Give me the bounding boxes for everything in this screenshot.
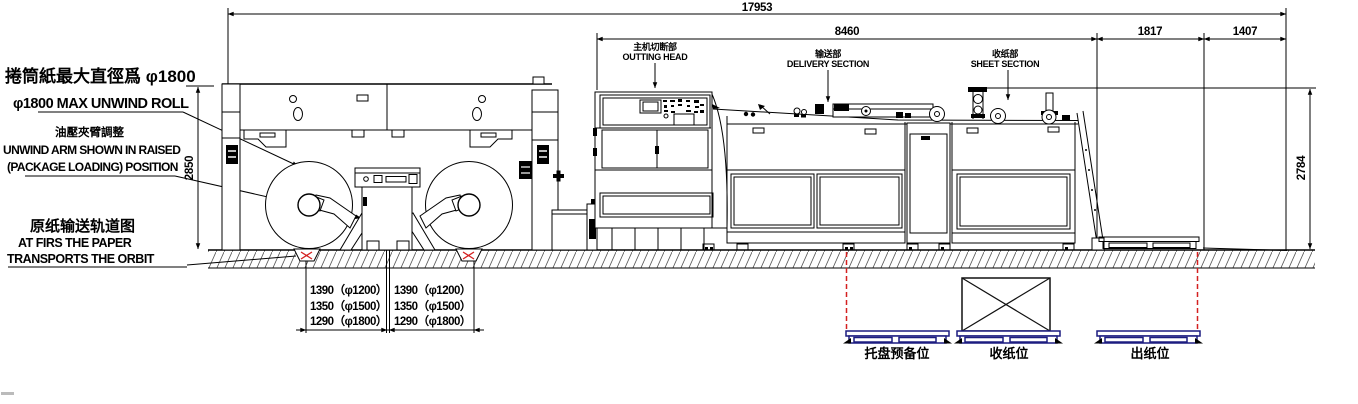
note-track-zh: 原纸输送轨道图 (30, 217, 135, 235)
note-arm-en1: UNWIND ARM SHOWN IN RAISED (3, 143, 181, 157)
frame-hole (290, 96, 297, 103)
sheet-cabinet (952, 122, 1075, 243)
note-paper-track: 原纸输送轨道图 AT FIRS THE PAPER TRANSPORTS THE… (7, 217, 296, 267)
label-sheet-en: SHEET SECTION (971, 59, 1040, 69)
stand-column-left (222, 84, 240, 250)
scan-artifact (1, 392, 14, 395)
cutter-base (612, 228, 704, 250)
frame-hole (479, 96, 486, 103)
label-delivery-zh: 输送部 (815, 48, 841, 59)
table-right: 1390（φ1200） 1350（φ1500） 1290（φ1800） (394, 283, 471, 328)
middle-cabinet (907, 123, 950, 243)
dim-1407: 1407 (1233, 26, 1257, 38)
table-left-row3: 1290（φ1800） (310, 314, 387, 328)
label-cutting-head: 主机切断部 OUTTING HEAD (623, 41, 689, 88)
outfeed-support (1099, 237, 1199, 249)
note-roll-zh: 捲筒紙最大直徑爲 φ1800 (5, 66, 196, 86)
side-device (519, 161, 532, 179)
label-cutting-en: OUTTING HEAD (623, 52, 689, 62)
machine-layout-drawing: 17953 8460 1817 1407 2850 2784 捲筒紙最大直徑爲 … (0, 0, 1358, 404)
pallet-collect (954, 331, 1063, 344)
frame-hole (294, 108, 303, 121)
label-cutting-zh: 主机切断部 (633, 41, 677, 52)
rear-post-roller (1041, 93, 1058, 124)
roll-hub-left (298, 194, 320, 216)
label-delivery-section: 输送部 DELIVERY SECTION (787, 48, 869, 102)
table-right-row1: 1390（φ1200） (394, 283, 471, 297)
deck-mechanisms (744, 87, 1070, 124)
label-delivery-en: DELIVERY SECTION (787, 59, 869, 69)
dimension-height-right: 2784 (985, 88, 1316, 249)
roller (930, 107, 945, 122)
dim-2850: 2850 (184, 156, 196, 180)
dimension-1407: 1407 (1204, 26, 1286, 39)
pedestal (1092, 238, 1104, 250)
infeed-table (552, 199, 597, 250)
drawing-canvas: 17953 8460 1817 1407 2850 2784 捲筒紙最大直徑爲 … (0, 0, 1358, 404)
station-collect-label: 收纸位 (989, 346, 1028, 361)
label-sheet-zh: 收纸部 (992, 48, 1018, 59)
dim-2784: 2784 (1296, 155, 1308, 180)
dimension-1817: 1817 (1097, 26, 1204, 250)
dim-1817: 1817 (1138, 26, 1162, 38)
frame-hole (473, 108, 482, 121)
roller (991, 109, 1006, 124)
note-arm-zh: 油壓夾臂調整 (55, 125, 124, 139)
floor-hatch (208, 250, 1315, 268)
unwind-stand (222, 77, 564, 250)
cutting-head-cabinet (593, 92, 727, 250)
table-right-row3: 1290（φ1800） (394, 314, 471, 328)
station-ready-label: 托盘预备位 (864, 346, 929, 361)
pallet-out (1094, 331, 1203, 344)
dim-total: 17953 (742, 2, 772, 14)
note-track-en2: TRANSPORTS THE ORBIT (7, 252, 155, 266)
table-left-row1: 1390（φ1200） (310, 283, 387, 297)
label-sheet-section: 收纸部 SHEET SECTION (971, 48, 1040, 100)
pallet-ready (843, 331, 952, 344)
table-left-row2: 1350（φ1500） (310, 299, 387, 313)
stack-box (962, 278, 1050, 331)
table-right-row2: 1350（φ1500） (394, 299, 471, 313)
station-out-label: 出纸位 (1130, 346, 1169, 361)
dim-8460: 8460 (835, 26, 859, 38)
note-track-en1: AT FIRS THE PAPER (18, 236, 132, 250)
roll-hub-right (458, 194, 480, 216)
delivery-cabinet (727, 116, 905, 243)
note-arm-en2: (PACKAGE LOADING) POSITION (7, 160, 178, 174)
center-column (340, 168, 435, 250)
table-left: 1390（φ1200） 1350（φ1500） 1290（φ1800） (310, 283, 387, 328)
note-roll-en: φ1800 MAX UNWIND ROLL (13, 96, 189, 112)
stacker-slope (1077, 111, 1103, 243)
delivery-sheet-body (703, 87, 1287, 251)
bracket-tower (968, 87, 987, 119)
machine-feet (703, 244, 1074, 250)
